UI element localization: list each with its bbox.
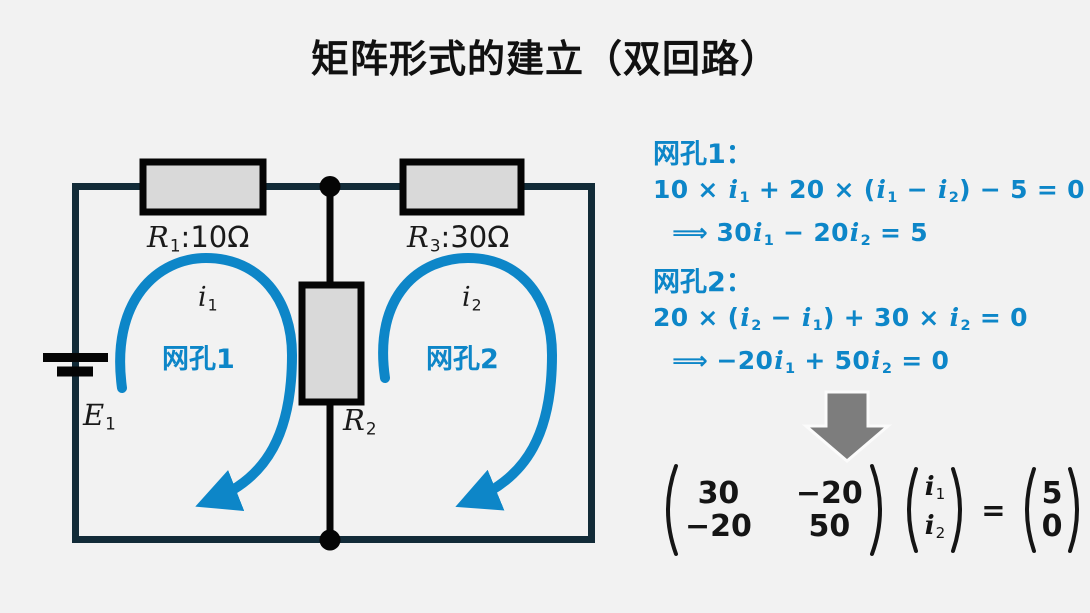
mesh1-equation-simplified: ⟹ 30i1 − 20i2 = 5 — [672, 218, 928, 249]
mesh2-equation-header: 网孔2： — [653, 260, 753, 299]
resistor-r1-label: R1:10Ω — [147, 220, 249, 256]
left-paren — [656, 462, 682, 558]
mesh1-name-label: 网孔1 — [162, 337, 235, 376]
rhs-vector: 5 0 — [1042, 477, 1063, 543]
mesh1-current-label: i1 — [198, 282, 218, 314]
mesh2-current-label: i2 — [462, 282, 482, 314]
slide: 矩阵形式的建立（双回路） R1:10Ω R3:30Ω R2 E1 i1 网孔1 … — [0, 0, 1090, 613]
coefficient-matrix: 30 −20 −20 50 — [685, 477, 863, 543]
right-paren — [1064, 465, 1088, 555]
rhs-cell-2: 0 — [1042, 510, 1063, 543]
right-paren — [947, 465, 971, 555]
left-paren — [1016, 465, 1040, 555]
resistor-r2-body — [302, 285, 361, 402]
mesh2-name-label: 网孔2 — [426, 337, 499, 376]
resistor-r2-label: R2 — [343, 403, 377, 439]
right-paren — [866, 462, 892, 558]
matrix-cell-11: 30 — [685, 477, 752, 510]
current-vector: i1 i2 — [924, 471, 945, 549]
matrix-equation: 30 −20 −20 50 i1 i2 = 5 0 — [656, 462, 1088, 558]
mesh2-equation-simplified: ⟹ −20i1 + 50i2 = 0 — [672, 346, 949, 377]
junction-dot-bottom — [320, 530, 341, 551]
down-arrow-icon — [790, 385, 910, 470]
page-title: 矩阵形式的建立（双回路） — [0, 28, 1090, 83]
mesh1-equation: 10 × i1 + 20 × (i1 − i2) − 5 = 0 — [653, 175, 1085, 206]
junction-dot-top — [320, 176, 341, 197]
left-paren — [898, 465, 922, 555]
matrix-cell-21: −20 — [685, 510, 752, 543]
resistor-r1-body — [143, 162, 263, 212]
mesh1-equation-header: 网孔1： — [653, 132, 753, 171]
matrix-cell-12: −20 — [796, 477, 863, 510]
circuit-diagram — [30, 140, 630, 560]
equals-sign: = — [981, 493, 1005, 527]
vector-cell-i1: i1 — [924, 471, 945, 510]
battery-e1-label: E1 — [83, 398, 116, 434]
resistor-r3-label: R3:30Ω — [407, 220, 509, 256]
resistor-r3-body — [403, 162, 521, 212]
rhs-cell-1: 5 — [1042, 477, 1063, 510]
vector-cell-i2: i2 — [924, 510, 945, 549]
matrix-cell-22: 50 — [796, 510, 863, 543]
mesh2-equation: 20 × (i2 − i1) + 30 × i2 = 0 — [653, 303, 1028, 334]
